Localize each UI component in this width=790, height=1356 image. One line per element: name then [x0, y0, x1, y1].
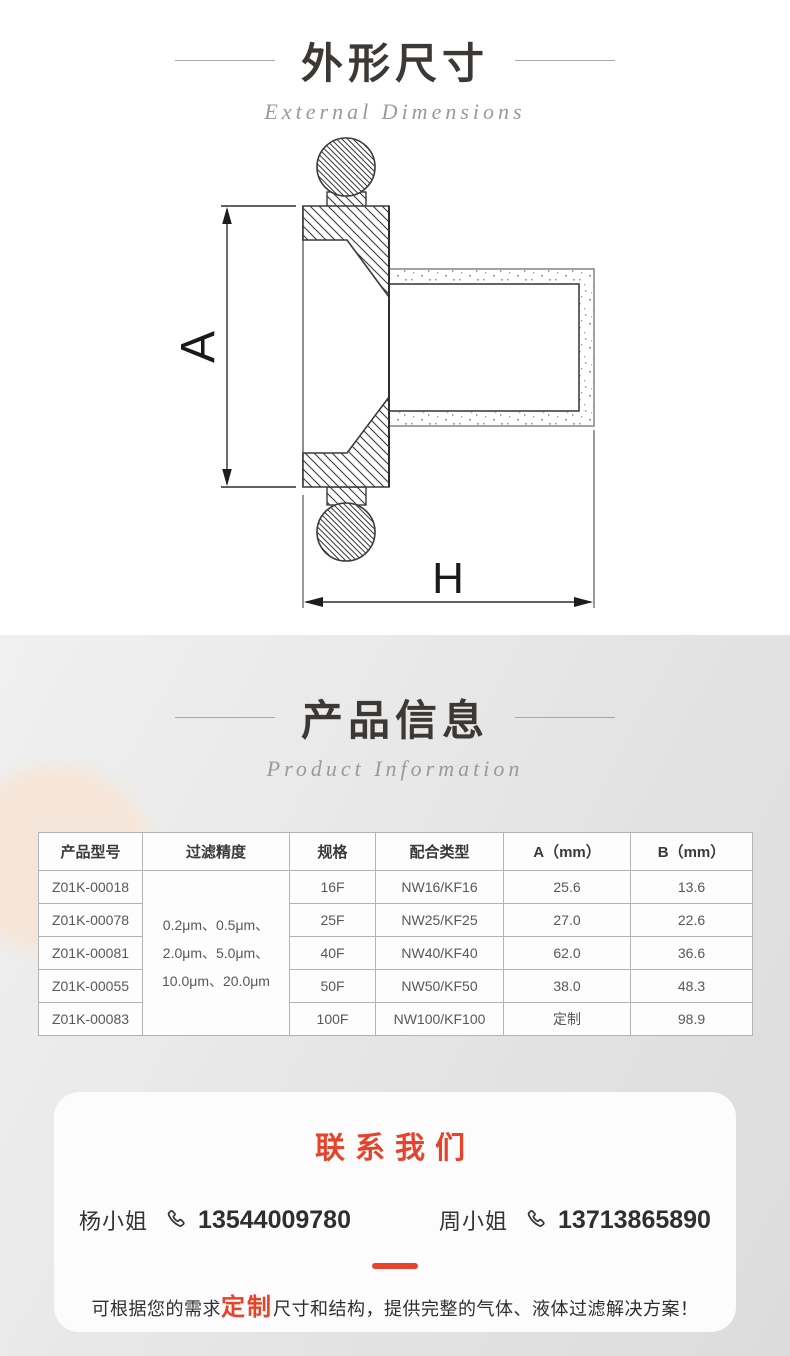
info-subtitle: Product Information: [0, 756, 790, 782]
cell-a: 62.0: [504, 937, 631, 970]
contact-phone[interactable]: 13544009780: [198, 1206, 351, 1235]
cell-b: 22.6: [631, 904, 753, 937]
precision-line: 2.0μm、5.0μm、: [143, 939, 289, 967]
contact-card: 联系我们 杨小姐 13544009780 周小姐 13713865890 可根据…: [54, 1092, 736, 1332]
cell-spec: 16F: [290, 871, 376, 904]
header-model: 产品型号: [39, 833, 143, 871]
cell-model: Z01K-00081: [39, 937, 143, 970]
cell-model: Z01K-00018: [39, 871, 143, 904]
customization-note: 可根据您的需求定制尺寸和结构，提供完整的气体、液体过滤解决方案！: [54, 1287, 736, 1322]
contact-item[interactable]: 周小姐 13713865890: [439, 1204, 711, 1236]
contact-name: 周小姐: [439, 1204, 508, 1236]
cell-a: 38.0: [504, 970, 631, 1003]
contact-name: 杨小姐: [79, 1204, 148, 1236]
contact-phone[interactable]: 13713865890: [558, 1206, 711, 1235]
dimensions-subtitle: External Dimensions: [0, 99, 790, 125]
cell-b: 13.6: [631, 871, 753, 904]
dimensions-title: 外形尺寸: [301, 30, 489, 91]
table-header-row: 产品型号 过滤精度 规格 配合类型 A（mm） B（mm）: [39, 833, 753, 871]
info-title-block: 产品信息 Product Information: [0, 635, 790, 782]
flange-bottom-body: [303, 397, 389, 487]
flange-top-body: [303, 206, 389, 297]
external-dimensions-section: 外形尺寸 External Dimensions: [0, 0, 790, 635]
header-spec: 规格: [290, 833, 376, 871]
dimension-drawing: A H: [0, 125, 790, 625]
product-info-section: 产品信息 Product Information 产品型号 过滤精度 规格 配合…: [0, 635, 790, 1356]
dimensions-title-block: 外形尺寸 External Dimensions: [0, 0, 790, 125]
cell-precision: 0.2μm、0.5μm、 2.0μm、5.0μm、 10.0μm、20.0μm: [143, 871, 290, 1036]
cell-type: NW100/KF100: [376, 1003, 504, 1036]
title-line-left: [175, 717, 275, 718]
precision-line: 10.0μm、20.0μm: [143, 967, 289, 995]
cell-type: NW25/KF25: [376, 904, 504, 937]
cell-spec: 50F: [290, 970, 376, 1003]
header-precision: 过滤精度: [143, 833, 290, 871]
filter-tube-outline: [389, 269, 594, 426]
table-row: Z01K-00018 0.2μm、0.5μm、 2.0μm、5.0μm、 10.…: [39, 871, 753, 904]
contact-item[interactable]: 杨小姐 13544009780: [79, 1204, 351, 1236]
cell-spec: 100F: [290, 1003, 376, 1036]
cell-spec: 40F: [290, 937, 376, 970]
cell-a: 定制: [504, 1003, 631, 1036]
title-line-right: [515, 60, 615, 61]
phone-icon: [524, 1208, 548, 1232]
red-divider: [372, 1263, 418, 1269]
note-highlight: 定制: [221, 1294, 273, 1321]
header-a-mm: A（mm）: [504, 833, 631, 871]
contact-title: 联系我们: [54, 1123, 736, 1167]
cell-model: Z01K-00078: [39, 904, 143, 937]
contact-row: 杨小姐 13544009780 周小姐 13713865890: [54, 1204, 736, 1236]
note-suffix: 尺寸和结构，提供完整的气体、液体过滤解决方案！: [273, 1299, 699, 1319]
precision-line: 0.2μm、0.5μm、: [143, 911, 289, 939]
cell-model: Z01K-00083: [39, 1003, 143, 1036]
o-ring-bottom: [317, 503, 375, 561]
dimension-h-label: H: [432, 554, 464, 603]
header-b-mm: B（mm）: [631, 833, 753, 871]
o-ring-top: [317, 138, 375, 196]
cell-type: NW16/KF16: [376, 871, 504, 904]
cell-b: 36.6: [631, 937, 753, 970]
phone-icon: [164, 1208, 188, 1232]
cell-type: NW40/KF40: [376, 937, 504, 970]
title-line-left: [175, 60, 275, 61]
header-type: 配合类型: [376, 833, 504, 871]
cell-b: 48.3: [631, 970, 753, 1003]
cell-a: 25.6: [504, 871, 631, 904]
dimension-a: [221, 206, 296, 487]
cell-b: 98.9: [631, 1003, 753, 1036]
spec-table: 产品型号 过滤精度 规格 配合类型 A（mm） B（mm） Z01K-00018…: [38, 832, 752, 1036]
cell-a: 27.0: [504, 904, 631, 937]
cell-spec: 25F: [290, 904, 376, 937]
cell-model: Z01K-00055: [39, 970, 143, 1003]
info-title: 产品信息: [301, 687, 489, 748]
dimension-a-label: A: [172, 331, 225, 363]
cell-type: NW50/KF50: [376, 970, 504, 1003]
note-prefix: 可根据您的需求: [92, 1299, 222, 1319]
title-line-right: [515, 717, 615, 718]
